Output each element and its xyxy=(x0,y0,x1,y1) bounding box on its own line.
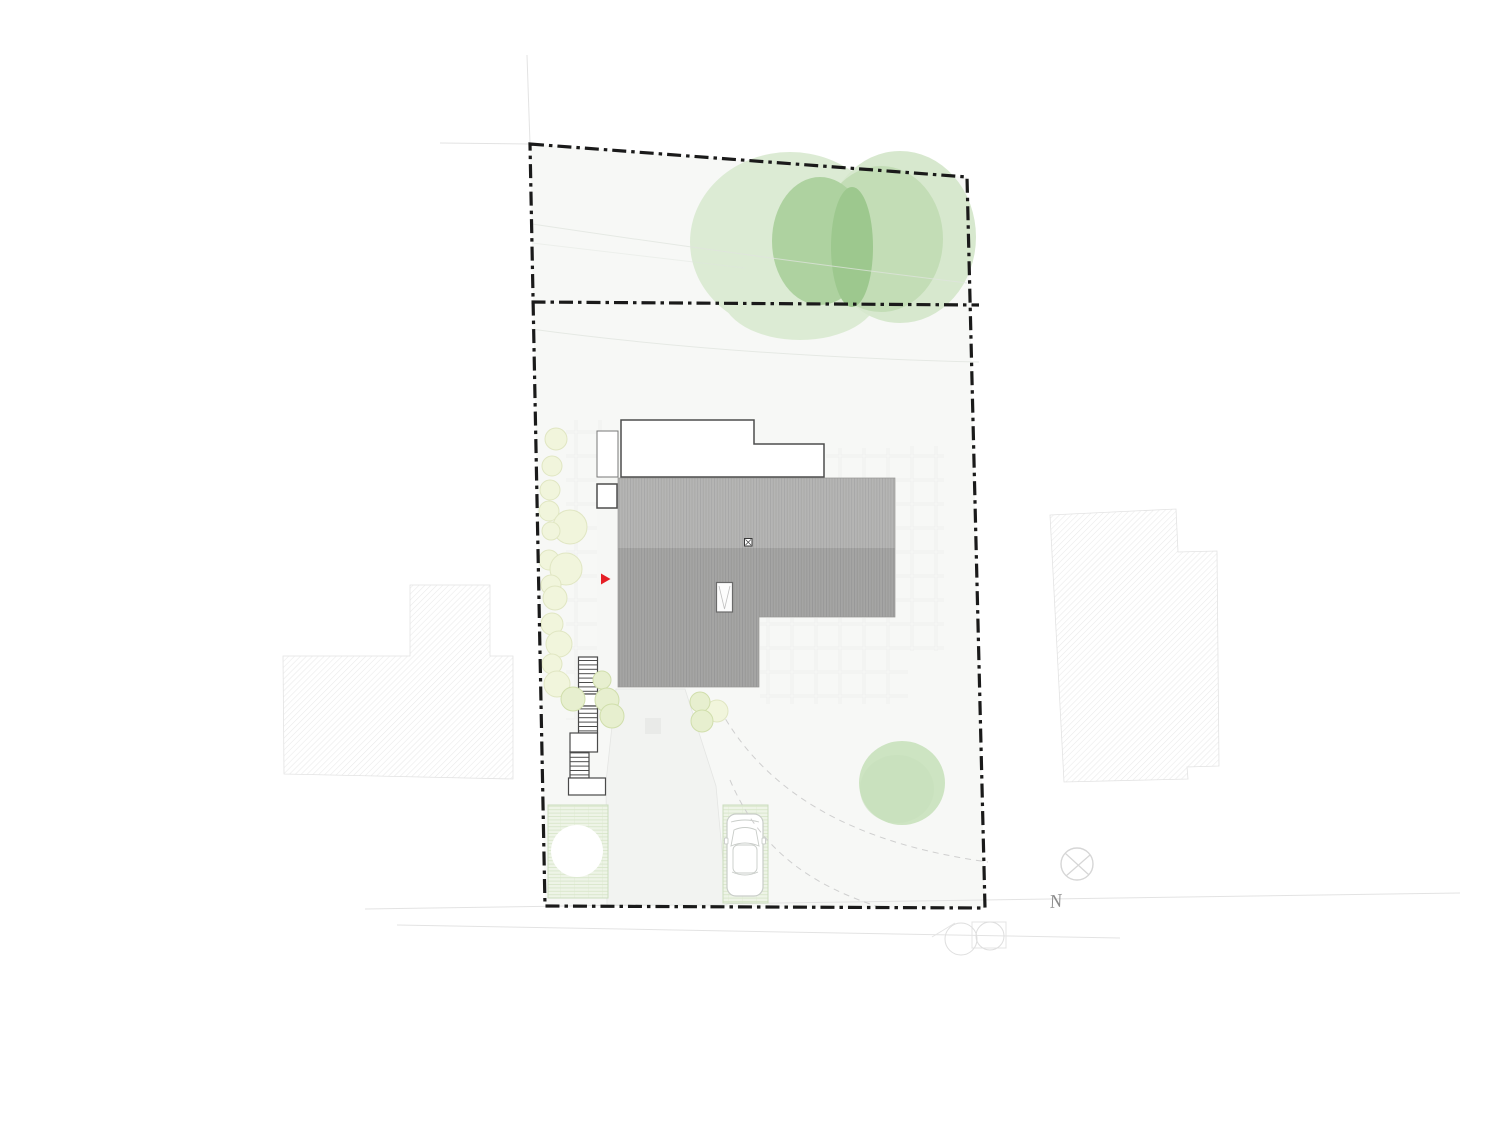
stair-landing-mid xyxy=(570,733,598,752)
street-vegetation xyxy=(932,922,1006,955)
tree-white-canopy xyxy=(551,825,603,877)
shrub xyxy=(690,692,710,712)
tree-canopy-group xyxy=(690,151,976,340)
tree-canopy-overlap xyxy=(831,187,873,307)
survey-line xyxy=(440,143,530,144)
stair-run-lower xyxy=(570,752,589,778)
shrub xyxy=(593,671,611,689)
shrub xyxy=(546,631,572,657)
shrub xyxy=(540,480,560,500)
chimney-marker xyxy=(745,539,753,547)
outbuilding-small-upper xyxy=(597,431,618,477)
skylight xyxy=(717,583,733,613)
roof-north-slope xyxy=(618,478,895,548)
shrub xyxy=(545,428,567,450)
car xyxy=(725,814,766,896)
neighbor-building-west xyxy=(283,585,513,779)
north-label: N xyxy=(1047,890,1065,913)
west-walkway xyxy=(597,478,618,688)
outbuilding-small-lower xyxy=(597,484,617,508)
shrub xyxy=(542,522,560,540)
north-marker: N xyxy=(1047,848,1093,913)
car-mirror-right xyxy=(762,838,766,844)
shrub xyxy=(691,710,713,732)
car-mirror-left xyxy=(725,838,729,844)
street-edge-line xyxy=(397,925,1120,938)
ghost-grid-southeast xyxy=(760,618,908,704)
driveway-inlay xyxy=(645,718,661,734)
site-plan-canvas: N xyxy=(0,0,1500,1125)
survey-line xyxy=(527,55,530,144)
shrub xyxy=(600,704,624,728)
stair-run-mid xyxy=(579,706,598,733)
shrub xyxy=(542,456,562,476)
tree-single-group xyxy=(859,741,945,825)
ghost-grid-northeast xyxy=(826,448,896,478)
site-plan-drawing: N xyxy=(0,0,1500,1125)
tree-canopy-single-shade xyxy=(860,755,934,823)
shrub xyxy=(543,586,567,610)
neighbor-building-east xyxy=(1050,509,1219,782)
stair-landing-bottom xyxy=(569,778,606,795)
car-body xyxy=(727,814,763,896)
crossed-circle-cross xyxy=(1065,853,1090,876)
shrub xyxy=(561,687,585,711)
